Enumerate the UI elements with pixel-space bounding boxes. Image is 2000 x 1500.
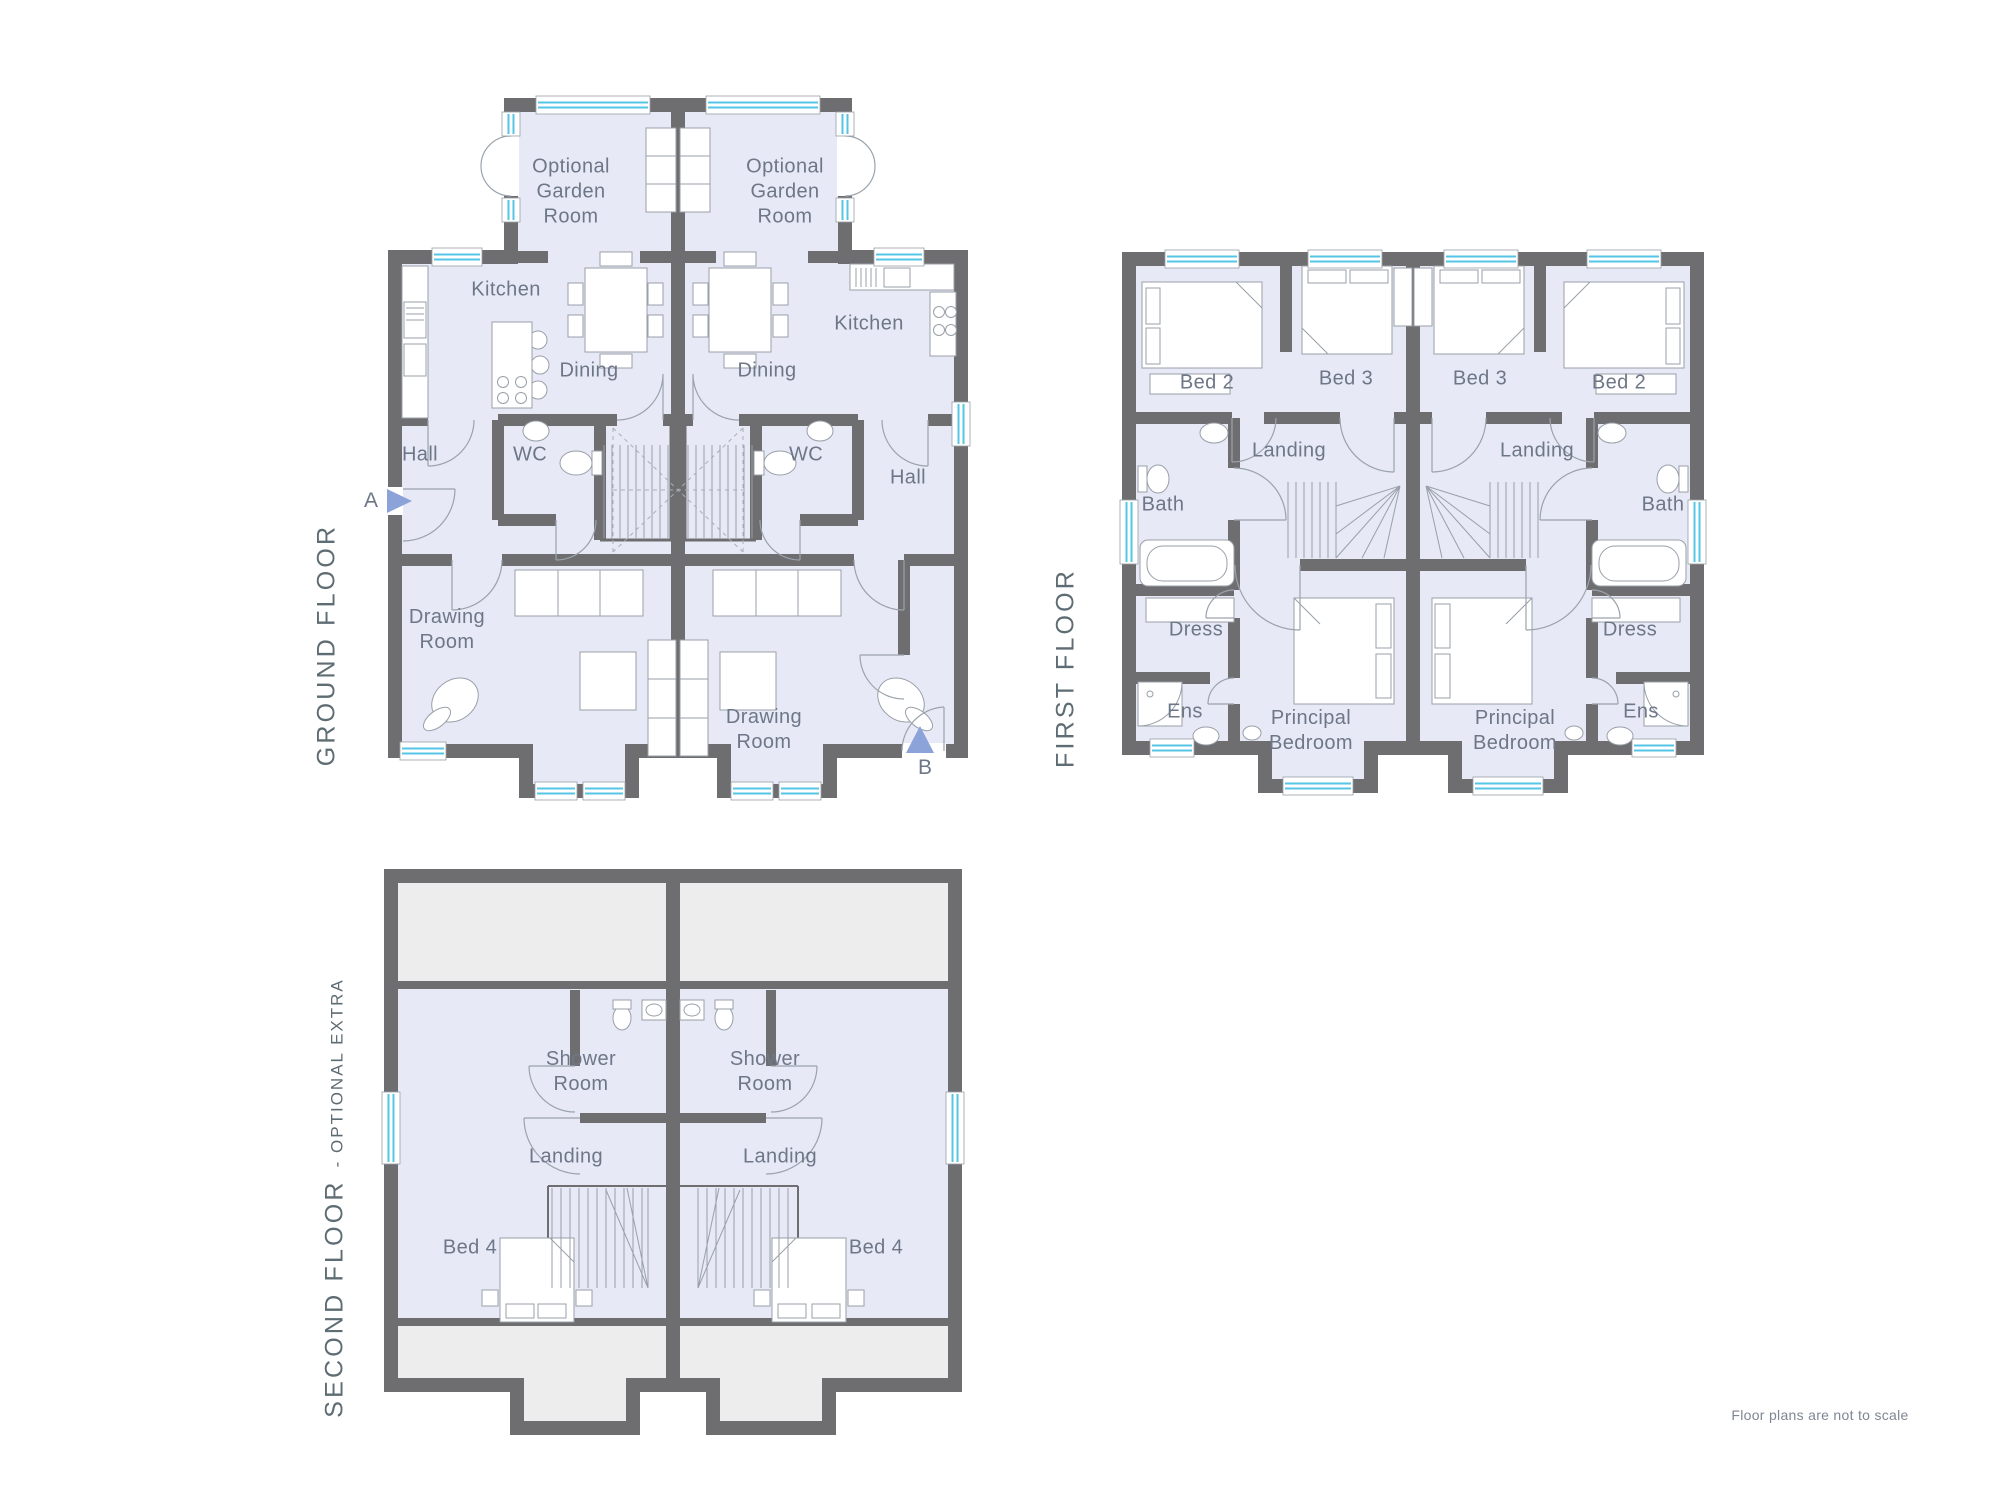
room-label-first-bed2-right: Bed 2 (1592, 371, 1646, 396)
room-label-ground-kitchen-left: Kitchen (471, 278, 541, 303)
room-label-ground-dining-right: Dining (737, 359, 796, 384)
room-label-first-ens-left: Ens (1167, 700, 1203, 725)
room-label-first-bed2-left: Bed 2 (1180, 371, 1234, 396)
floorplan-drawing (0, 0, 2000, 1500)
window-icon (836, 112, 854, 136)
window-icon (946, 1092, 964, 1164)
window-icon (1165, 250, 1239, 268)
room-label-ground-drawing-left: Drawing Room (409, 605, 485, 655)
window-icon (706, 96, 820, 114)
room-label-ground-kitchen-right: Kitchen (834, 312, 904, 337)
window-icon (502, 198, 520, 222)
window-icon (536, 96, 650, 114)
room-label-first-bath-right: Bath (1642, 493, 1685, 518)
second-floor-title-suffix: - OPTIONAL EXTRA (328, 978, 348, 1167)
window-icon (535, 782, 577, 800)
window-icon (874, 248, 924, 266)
room-label-first-principal-left: Principal Bedroom (1269, 706, 1353, 756)
section-marker-b-label: B (918, 756, 932, 780)
room-label-ground-wc-left: WC (513, 443, 547, 468)
first-floor-title-text: FIRST FLOOR (1052, 568, 1081, 768)
first-floor-title: FIRST FLOOR (1052, 568, 1081, 768)
room-label-first-landing-right: Landing (1500, 439, 1574, 464)
room-label-first-bath-left: Bath (1142, 493, 1185, 518)
floorplan-sheet: Optional Garden Room Optional Garden Roo… (0, 0, 2000, 1500)
room-label-first-bed3-left: Bed 3 (1319, 367, 1373, 392)
window-icon (1120, 500, 1138, 564)
second-floor-plan (391, 876, 955, 1428)
room-label-ground-hall-left: Hall (402, 443, 438, 468)
second-floor-title: SECOND FLOOR - OPTIONAL EXTRA (321, 978, 350, 1418)
room-label-first-bed3-right: Bed 3 (1453, 367, 1507, 392)
room-label-first-ens-right: Ens (1623, 700, 1659, 725)
window-icon (382, 1092, 400, 1164)
window-icon (400, 742, 446, 760)
room-label-ground-hall-right: Hall (890, 466, 926, 491)
window-icon (1283, 777, 1353, 795)
room-label-second-shower-right: Shower Room (730, 1047, 800, 1097)
room-label-ground-garden-left: Optional Garden Room (532, 155, 610, 230)
room-label-second-shower-left: Shower Room (546, 1047, 616, 1097)
window-icon (1444, 250, 1518, 268)
scale-disclaimer: Floor plans are not to scale (1731, 1407, 1908, 1423)
ground-floor-plan (387, 105, 961, 791)
room-label-ground-wc-right: WC (789, 443, 823, 468)
window-icon (583, 782, 625, 800)
room-label-second-bed4-left: Bed 4 (443, 1236, 497, 1261)
room-label-first-dress-right: Dress (1603, 618, 1657, 643)
window-icon (1632, 739, 1676, 757)
ground-floor-title-text: GROUND FLOOR (313, 524, 342, 767)
window-icon (502, 112, 520, 136)
room-label-second-landing-right: Landing (743, 1145, 817, 1170)
room-label-ground-garden-right: Optional Garden Room (746, 155, 824, 230)
window-icon (731, 782, 773, 800)
window-icon (779, 782, 821, 800)
first-floor-plan (1129, 259, 1697, 786)
window-icon (1150, 739, 1194, 757)
window-icon (952, 402, 970, 446)
room-label-ground-drawing-right: Drawing Room (726, 705, 802, 755)
room-label-first-dress-left: Dress (1169, 618, 1223, 643)
window-icon (836, 198, 854, 222)
second-floor-title-text: SECOND FLOOR (321, 1179, 350, 1417)
room-label-first-landing-left: Landing (1252, 439, 1326, 464)
room-label-first-principal-right: Principal Bedroom (1473, 706, 1557, 756)
window-icon (1587, 250, 1661, 268)
window-icon (1688, 500, 1706, 564)
room-label-second-landing-left: Landing (529, 1145, 603, 1170)
window-icon (432, 248, 482, 266)
room-label-second-bed4-right: Bed 4 (849, 1236, 903, 1261)
ground-floor-title: GROUND FLOOR (313, 524, 342, 767)
section-marker-a-label: A (364, 489, 378, 513)
window-icon (1473, 777, 1543, 795)
window-icon (1308, 250, 1382, 268)
room-label-ground-dining-left: Dining (559, 359, 618, 384)
